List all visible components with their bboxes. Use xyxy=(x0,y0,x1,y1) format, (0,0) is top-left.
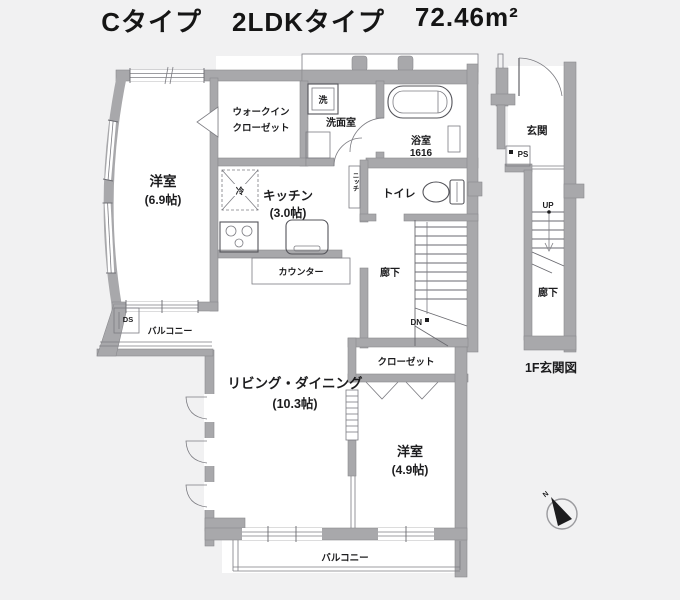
label-hallway-1f: 廊下 xyxy=(538,286,558,299)
room-label-living: リビング・ダイニング xyxy=(228,375,363,391)
room-label-toilet: トイレ xyxy=(383,187,416,200)
entrance-diagram: 玄関 PS UP 廊下 1F玄関図 xyxy=(491,54,584,375)
label-genkan: 玄関 xyxy=(527,124,548,137)
room-size-kitchen: (3.0帖) xyxy=(270,205,307,220)
fixture-label-fridge: 冷 xyxy=(236,186,245,196)
room-label-balcony-bottom: バルコニー xyxy=(321,552,368,564)
room-label-bedroom1: 洋室 xyxy=(150,173,177,189)
room-size-bedroom2: (4.9帖) xyxy=(392,462,429,477)
room-label-wic-2: クローゼット xyxy=(232,122,289,134)
label-counter: カウンター xyxy=(278,266,323,277)
room-size-bathroom: 1616 xyxy=(410,148,433,159)
caption-1f: 1F玄関図 xyxy=(525,360,577,375)
compass-north: N xyxy=(542,491,550,500)
compass: N xyxy=(542,491,577,529)
label-down: DN xyxy=(410,318,422,327)
room-size-bedroom1: (6.9帖) xyxy=(145,192,182,207)
room-label-bathroom: 浴室 xyxy=(411,134,431,147)
casement-window xyxy=(186,394,215,510)
fixture-label-laundry: 洗 xyxy=(318,94,327,105)
label-duct: DS xyxy=(123,315,133,324)
label-up: UP xyxy=(542,201,554,210)
room-label-bedroom2: 洋室 xyxy=(397,444,423,459)
room-label-wic-1: ウォークイン xyxy=(232,107,289,118)
room-label-closet: クローゼット xyxy=(377,356,434,368)
room-label-kitchen: キッチン xyxy=(263,189,313,203)
floor-plan-page: Cタイプ 2LDKタイプ 72.46m² xyxy=(0,0,680,600)
label-ps: PS xyxy=(518,150,529,159)
room-size-living: (10.3帖) xyxy=(272,396,317,411)
room-label-balcony-side: バルコニー xyxy=(148,326,193,336)
floor-plan: 洋室 (6.9帖) ウォークイン クローゼット 洗 洗面室 浴室 1616 冷 … xyxy=(0,0,680,600)
room-label-washroom: 洗面室 xyxy=(326,116,356,129)
roof-protrusion xyxy=(302,54,478,72)
main-floor-plan: 洋室 (6.9帖) ウォークイン クローゼット 洗 洗面室 浴室 1616 冷 … xyxy=(97,54,482,577)
room-label-hallway: 廊下 xyxy=(380,266,400,279)
